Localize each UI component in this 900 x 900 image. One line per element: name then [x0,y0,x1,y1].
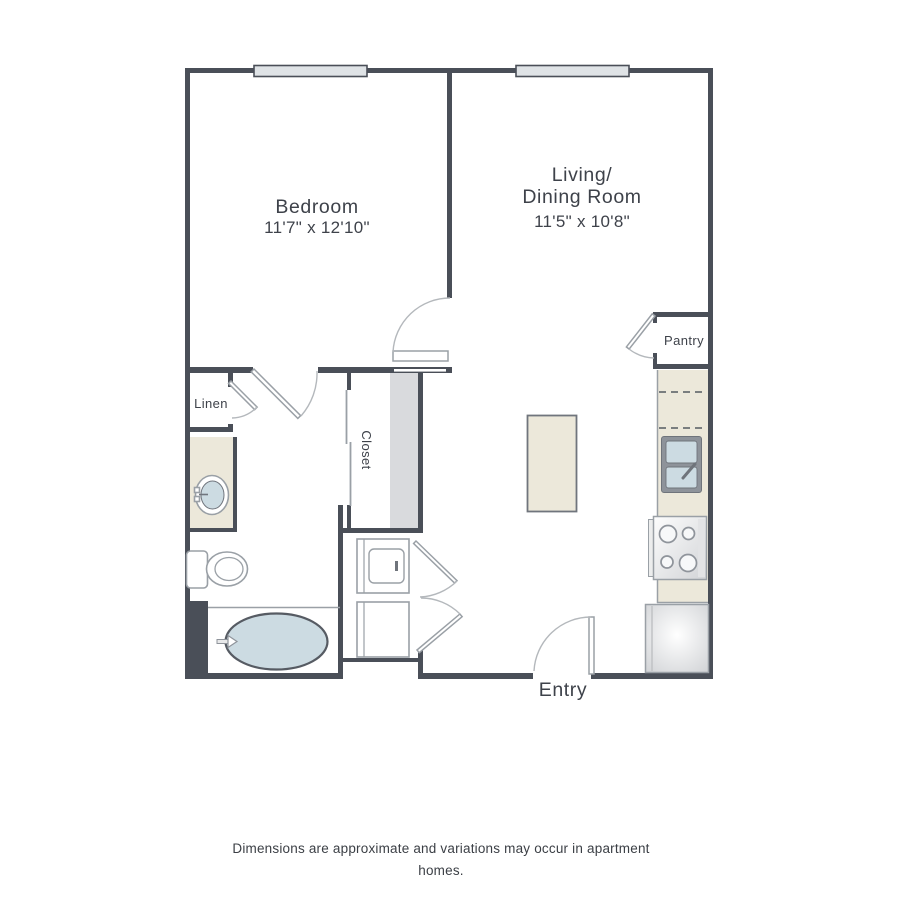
pantry-label: Pantry [664,330,704,352]
wall-vanity-east [233,437,237,532]
laundry-door-swing-top [420,581,457,597]
tub-faucet [217,640,228,644]
bedroom-door [393,298,450,361]
bedroom-door-leaf [393,351,448,361]
entry-label: Entry [539,679,588,701]
toilet-tank [187,551,208,588]
bedroom-dimensions: 11'7" x 12'10" [264,217,370,239]
entry-door-swing [534,617,591,671]
entry-door-leaf [589,617,594,674]
vanity-faucet-handle [195,497,200,502]
wall-pantry-south [653,364,713,369]
stove [649,517,707,580]
kitchen-sink [662,437,702,493]
wall-east [708,68,713,679]
bedroom-window [254,66,367,77]
washer [357,602,409,657]
kitchen-sink-basin-bottom [666,467,697,488]
closet-sliding-doors [347,390,351,506]
bathroom-door [251,369,317,418]
bathroom-door-leaf [251,369,300,418]
wall-linen-south [185,427,233,432]
laundry-jamb-bottom [418,650,423,679]
floor-plan-drawing [0,0,900,900]
wall-closet-east [418,372,423,533]
wall-south-kitchen [591,673,713,679]
bedroom-label: Bedroom [275,196,358,218]
bathroom-door-swing [301,371,317,416]
linen-label: Linen [194,393,228,415]
closet-label: Closet [355,430,377,469]
linen-door-leaf [229,381,258,410]
living-room-window [516,66,629,77]
dryer-door [369,549,404,583]
bedroom-door-swing [393,298,450,352]
wall-laundry-north [340,528,423,533]
entry-door [534,617,594,674]
closet-shelf-strip [390,372,418,528]
vanity-faucet-handle [195,488,200,493]
closet-jamb-top [347,372,351,390]
pantry-door [626,314,655,358]
wall-bedroom-living-divider [447,68,452,298]
wall-block-tub [185,601,208,678]
wall-bath-east [338,505,343,679]
disclaimer-text: Dimensions are approximate and variation… [212,838,671,882]
burner [661,556,673,568]
dryer-handle [395,561,398,571]
stove-side-panel [698,519,705,577]
dryer [357,539,409,593]
kitchen-island [528,416,577,512]
pantry-door-swing [629,349,654,358]
laundry-door-leaf-bottom [417,614,462,653]
laundry-door-swing-bottom [421,598,460,614]
washer-body [357,602,409,657]
pantry-door-leaf [626,314,655,349]
wall-vanity-south [185,528,237,532]
wall-hall-north [185,367,253,373]
toilet [187,551,248,588]
wall-laundry-south [343,658,418,662]
bathtub [208,608,340,670]
wall-pantry-north [653,312,713,317]
linen-door [229,381,258,418]
living-dining-dimensions: 11'5" x 10'8" [534,211,630,233]
bedroom-door-threshold [394,369,446,372]
vanity-sink [195,476,229,515]
burner [680,555,697,572]
tub-basin [226,614,328,670]
burner [683,528,695,540]
kitchen-sink-basin-top [666,441,697,463]
laundry-doors [414,541,463,653]
burner [660,526,677,543]
floor-plan-page: Bedroom 11'7" x 12'10" Living/ Dining Ro… [0,0,900,900]
wall-south-bath [185,673,343,679]
laundry-door-leaf-top [414,541,457,583]
living-dining-label: Living/ Dining Room [522,164,641,208]
refrigerator-body [646,605,709,673]
refrigerator [646,605,709,673]
wall-south-center [418,673,533,679]
